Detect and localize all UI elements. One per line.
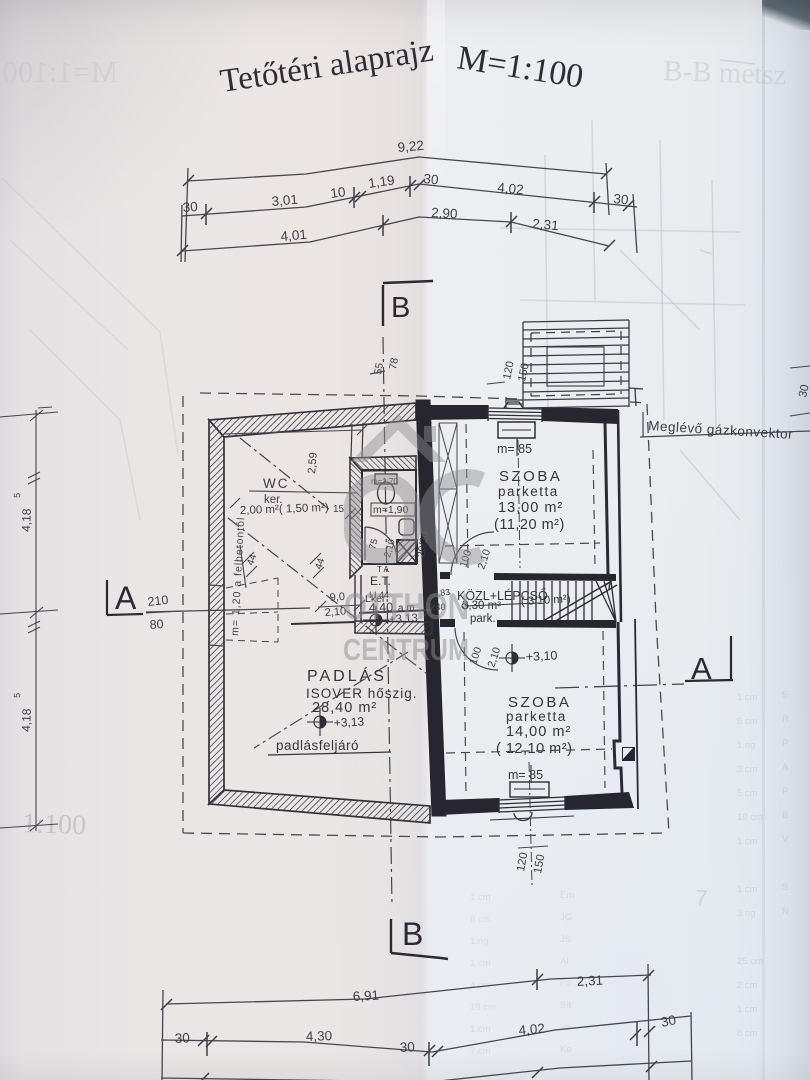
svg-text:6 cm: 6 cm (737, 716, 758, 727)
svg-text:4,02: 4,02 (518, 1021, 545, 1038)
svg-text:Meglévő gázkonvektor: Meglévő gázkonvektor (648, 418, 794, 442)
svg-text:30: 30 (660, 1012, 678, 1030)
svg-text:4,18: 4,18 (19, 508, 34, 532)
svg-text:A: A (691, 651, 712, 686)
svg-text:25 cm: 25 cm (737, 956, 763, 967)
svg-text:a m: a m (398, 602, 415, 614)
svg-text:30: 30 (613, 191, 630, 207)
svg-text:ISOVER hőszig.: ISOVER hőszig. (306, 686, 418, 701)
svg-text:+3,10: +3,10 (525, 648, 557, 664)
svg-text:B: B (782, 810, 788, 821)
svg-text:PADLÁS: PADLÁS (307, 666, 387, 685)
svg-text:2,90: 2,90 (431, 205, 458, 221)
svg-text:m=1,90: m=1,90 (373, 504, 408, 516)
svg-text:A: A (115, 580, 137, 616)
svg-text:E.T.: E.T. (370, 574, 391, 588)
svg-text:4,40: 4,40 (369, 600, 394, 615)
svg-text:park.: park. (470, 613, 496, 625)
svg-text:Em: Em (560, 890, 574, 901)
svg-text:2 cm: 2 cm (737, 980, 758, 991)
svg-text:WC: WC (263, 476, 290, 491)
svg-text:m= 85: m= 85 (508, 768, 543, 782)
svg-text:OTTHON: OTTHON (344, 586, 469, 627)
svg-text:3 cm: 3 cm (737, 764, 758, 775)
svg-text:150: 150 (516, 362, 532, 382)
svg-text:28,40 m²: 28,40 m² (312, 700, 377, 716)
svg-text:2,31: 2,31 (576, 973, 603, 989)
svg-text:m= 85: m= 85 (497, 442, 532, 456)
svg-text:Fo: Fo (560, 978, 571, 989)
svg-text:+3,13: +3,13 (389, 612, 419, 626)
svg-text:1 cm: 1 cm (737, 836, 758, 847)
svg-text:B-B metsz: B-B metsz (663, 55, 787, 91)
svg-text:JS: JS (560, 934, 571, 945)
svg-text:9,22: 9,22 (397, 138, 424, 155)
svg-text:2,59: 2,59 (306, 452, 320, 474)
svg-text:KÖZL+LÉPCSŐ: KÖZL+LÉPCSŐ (457, 588, 548, 603)
svg-text:P: P (782, 738, 788, 749)
svg-text:parketta: parketta (506, 709, 567, 724)
svg-text:SZOBA: SZOBA (499, 468, 562, 485)
svg-text:78: 78 (387, 357, 401, 371)
svg-text:30: 30 (399, 1039, 415, 1055)
svg-text:Tetőtéri alaprajz: Tetőtéri alaprajz (218, 33, 436, 100)
svg-text:100: 100 (467, 645, 484, 666)
svg-text:I I 44: I I 44 (369, 590, 389, 600)
svg-text:2,10: 2,10 (324, 606, 346, 619)
svg-text:4 cm: 4 cm (470, 980, 491, 991)
svg-text:30: 30 (174, 1030, 190, 1046)
svg-text:100: 100 (457, 548, 474, 569)
svg-text:1 cm: 1 cm (470, 958, 491, 969)
svg-text:B: B (391, 292, 410, 324)
svg-text:120: 120 (501, 360, 517, 380)
svg-text:parketta: parketta (498, 484, 559, 499)
svg-text:Al: Al (560, 956, 568, 967)
svg-text:Lker: Lker (365, 593, 386, 605)
svg-text:M=1:100: M=1:100 (2, 54, 118, 89)
svg-text:7: 7 (695, 885, 709, 911)
svg-text:P: P (782, 786, 788, 797)
svg-text:2,10: 2,10 (485, 646, 503, 669)
svg-text:1 cm: 1 cm (470, 1024, 491, 1035)
svg-text:3,30 m²: 3,30 m² (462, 600, 501, 612)
svg-text:150: 150 (532, 854, 547, 875)
svg-text:T A: T A (377, 565, 390, 574)
svg-text:-2,83: -2,83 (429, 587, 450, 599)
svg-text:1 cm: 1 cm (737, 692, 758, 703)
svg-text:m=1,70: m=1,70 (371, 477, 398, 486)
svg-text:JG: JG (560, 912, 572, 923)
svg-text:1,19: 1,19 (367, 172, 395, 191)
svg-text:80: 80 (149, 617, 164, 632)
svg-text:Bit: Bit (560, 1000, 571, 1011)
svg-text:1:100: 1:100 (22, 808, 87, 841)
svg-text:4,01: 4,01 (280, 227, 307, 244)
svg-text:19 cm: 19 cm (470, 1002, 496, 1013)
svg-text:9,0: 9,0 (329, 591, 345, 604)
svg-text:N: N (782, 906, 789, 917)
svg-text:30: 30 (423, 171, 440, 187)
svg-text:1 cm: 1 cm (737, 1004, 758, 1015)
svg-text:Va: Va (560, 1022, 572, 1033)
svg-text:4,02: 4,02 (497, 180, 524, 197)
svg-text:1 cm: 1 cm (470, 892, 491, 903)
svg-text:2,40: 2,40 (428, 602, 446, 612)
svg-text:14,00 m²: 14,00 m² (506, 724, 571, 740)
svg-text:B: B (402, 916, 423, 952)
svg-text:4,30: 4,30 (306, 1028, 333, 1044)
svg-text:30: 30 (182, 199, 198, 215)
svg-text:210: 210 (147, 593, 169, 609)
svg-text:V: V (782, 834, 789, 845)
svg-text:ker.: ker. (264, 494, 283, 506)
svg-text:30: 30 (797, 384, 810, 399)
svg-text:5 cm: 5 cm (737, 788, 758, 799)
svg-text:CENTRUM: CENTRUM (343, 632, 469, 667)
svg-text:5: 5 (12, 493, 22, 498)
svg-text:S: S (782, 882, 788, 893)
svg-text:m= 1,20 a felbetontól: m= 1,20 a felbetontól (229, 516, 247, 636)
svg-text:10: 10 (330, 184, 347, 201)
svg-text:(11,20 m²): (11,20 m²) (494, 517, 565, 533)
svg-text:1 ng: 1 ng (737, 740, 756, 751)
svg-text:M=1:100: M=1:100 (455, 39, 586, 95)
svg-text:20/20: 20/20 (415, 530, 431, 558)
svg-text:2,00 m²( 1,50 m²): 2,00 m²( 1,50 m²) (240, 502, 329, 517)
svg-text:6,91: 6,91 (352, 988, 379, 1004)
svg-text:Ko: Ko (560, 1044, 572, 1055)
svg-text:120: 120 (515, 852, 530, 873)
svg-text:7 cm: 7 cm (470, 1046, 491, 1057)
svg-text:( 12,10 m²): ( 12,10 m²) (496, 741, 572, 757)
svg-text:3 ng: 3 ng (737, 908, 756, 919)
svg-text:+3,13: +3,13 (333, 714, 364, 730)
svg-text:2,10: 2,10 (382, 538, 397, 559)
svg-text:A: A (782, 762, 789, 773)
svg-text:75: 75 (367, 538, 380, 551)
svg-text:13,00 m²: 13,00 m² (498, 500, 563, 516)
svg-text:1 cm: 1 cm (737, 884, 758, 895)
svg-text:2,31: 2,31 (532, 216, 559, 233)
svg-text:8 cm: 8 cm (737, 1028, 758, 1039)
svg-text:2,10: 2,10 (475, 548, 493, 571)
svg-text:6 cm: 6 cm (470, 914, 491, 925)
svg-text:15: 15 (333, 504, 345, 515)
svg-text:1 ng: 1 ng (470, 936, 489, 947)
svg-text:R: R (782, 714, 789, 725)
svg-text:55: 55 (372, 362, 386, 376)
svg-text:44: 44 (313, 557, 327, 571)
svg-text:3,01: 3,01 (271, 192, 298, 209)
svg-text:padlásfeljáró: padlásfeljáró (276, 738, 359, 753)
svg-text:19 cm: 19 cm (737, 812, 763, 823)
svg-text:( 3,10 m²): ( 3,10 m²) (521, 593, 572, 608)
svg-text:SZOBA: SZOBA (508, 694, 571, 711)
svg-text:44: 44 (245, 553, 259, 567)
svg-text:5: 5 (12, 693, 22, 698)
svg-text:5: 5 (782, 690, 787, 701)
svg-text:4,18: 4,18 (19, 708, 34, 732)
